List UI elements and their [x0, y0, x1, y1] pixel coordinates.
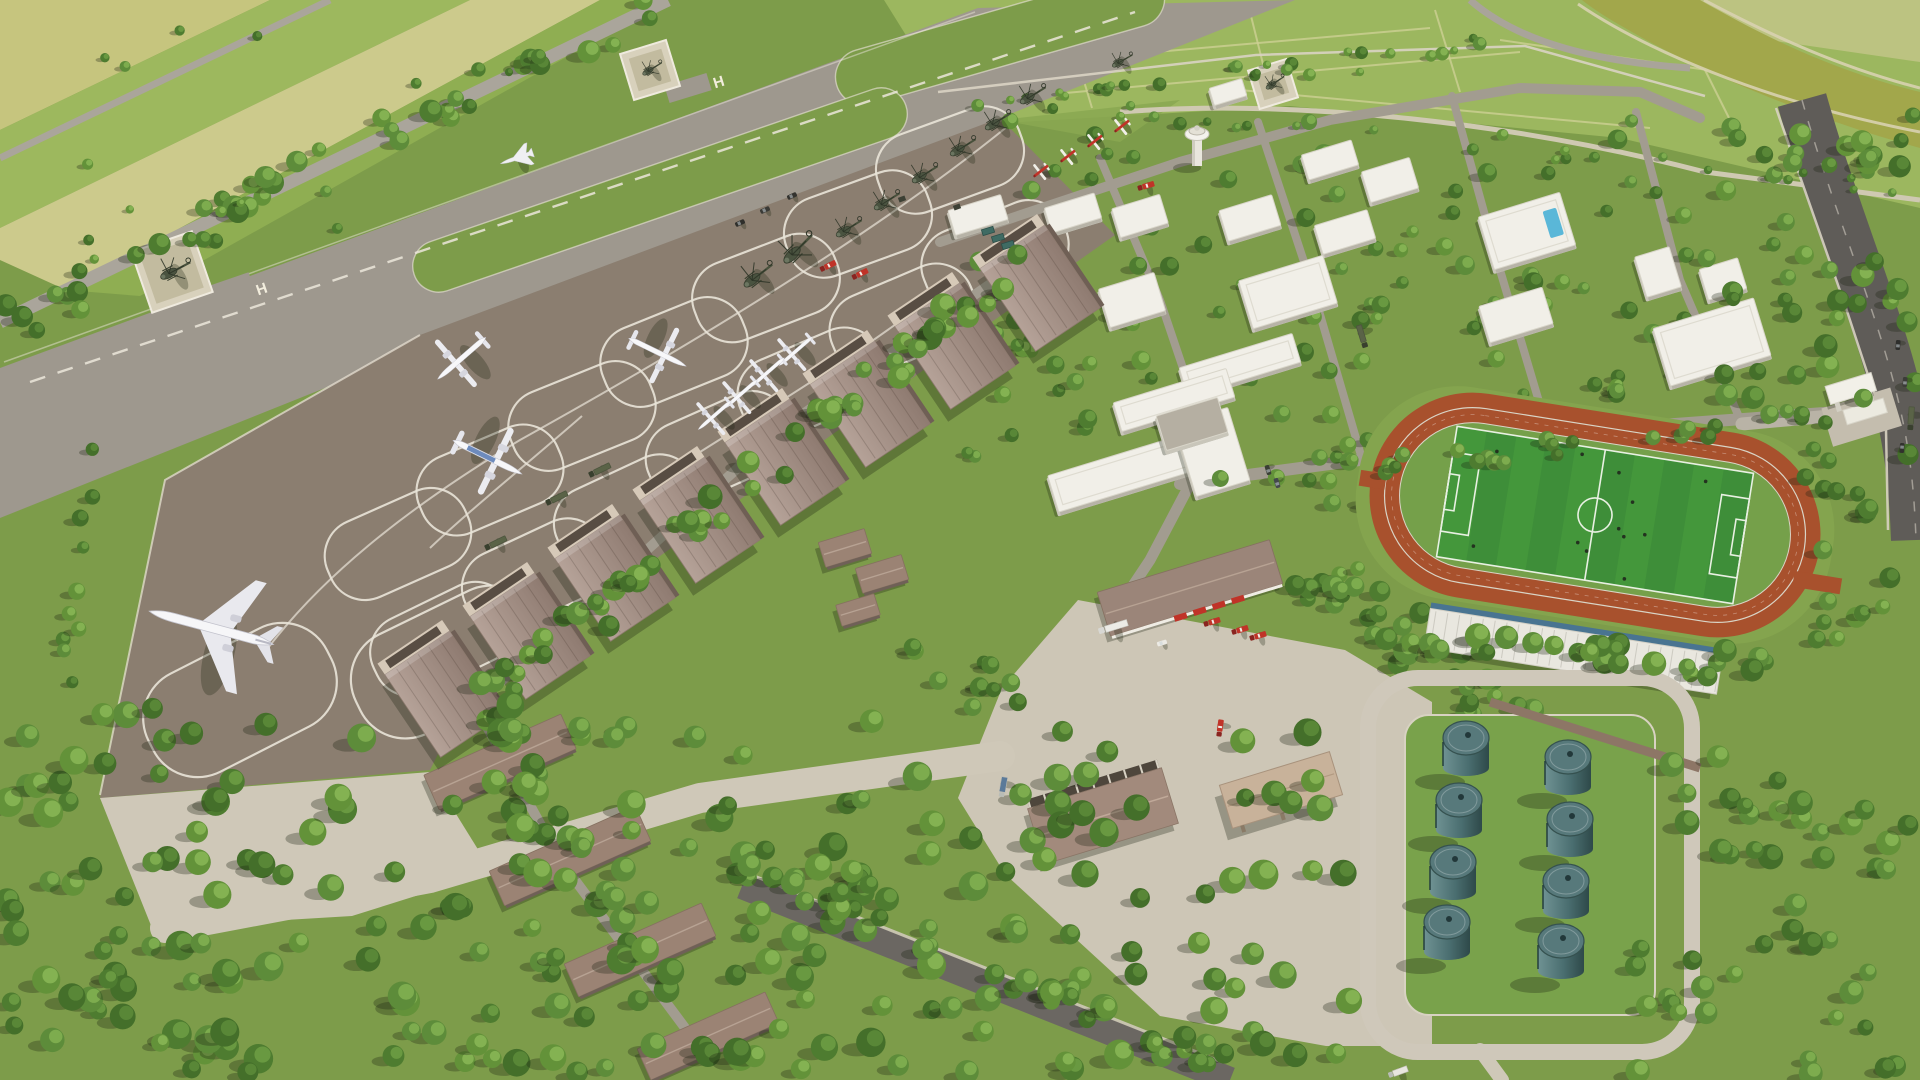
tree-highlight: [849, 862, 862, 875]
tree-highlight: [1834, 1011, 1843, 1020]
tree-highlight: [507, 694, 522, 709]
tree-highlight: [980, 1023, 992, 1035]
tree-highlight: [1756, 649, 1768, 661]
tree-highlight: [453, 92, 462, 101]
tree-highlight: [821, 1036, 836, 1051]
tree-highlight: [611, 38, 620, 47]
tree-highlight: [1775, 773, 1785, 783]
tree-highlight: [686, 840, 696, 850]
tree-highlight: [47, 873, 59, 885]
tree-highlight: [1685, 660, 1695, 670]
tree-highlight: [1554, 156, 1559, 161]
tree-highlight: [792, 424, 803, 435]
car-glass: [1903, 381, 1907, 384]
tree-highlight: [1848, 982, 1861, 995]
tree-highlight: [1891, 189, 1896, 194]
tree-highlight: [611, 728, 623, 740]
tree-highlight: [920, 939, 932, 951]
tree-highlight: [1904, 313, 1916, 325]
tree-highlight: [452, 895, 467, 910]
tree-highlight: [827, 400, 840, 413]
tree-highlight: [969, 874, 985, 890]
tree-highlight: [392, 863, 404, 875]
tree-highlight: [725, 798, 735, 808]
tree-highlight: [586, 42, 599, 55]
tree-highlight: [1787, 176, 1792, 181]
tree-highlight: [1474, 625, 1488, 639]
tree-highlight: [623, 718, 635, 730]
tree-highlight: [1749, 660, 1762, 673]
tree-highlight: [9, 994, 20, 1005]
tree-highlight: [1651, 653, 1664, 666]
tree-highlight: [1790, 921, 1802, 933]
tree-highlight: [574, 1063, 586, 1075]
tree-highlight: [603, 1060, 613, 1070]
tree-highlight: [1551, 637, 1562, 648]
tree-highlight: [1167, 258, 1177, 268]
tree-highlight: [1668, 754, 1682, 768]
tree-highlight: [1522, 389, 1529, 396]
tank-top: [1424, 905, 1470, 939]
scene-canvas: HH: [0, 0, 1920, 1080]
tree-highlight: [164, 848, 178, 862]
tree-highlight: [926, 843, 940, 857]
tree-highlight: [692, 728, 704, 740]
tree-highlight: [1897, 157, 1909, 169]
tree-highlight: [1440, 48, 1448, 56]
tree-highlight: [1010, 429, 1018, 437]
tree-highlight: [868, 711, 881, 724]
tree-highlight: [1119, 113, 1124, 118]
tree-highlight: [1729, 119, 1740, 130]
tree-highlight: [1835, 632, 1844, 641]
tree-highlight: [1083, 764, 1097, 778]
tree-highlight: [746, 855, 759, 868]
tree-highlight: [1827, 263, 1837, 273]
tree-highlight: [1400, 448, 1409, 457]
tree-highlight: [1304, 721, 1319, 736]
tree-highlight: [116, 928, 126, 938]
tree-highlight: [1494, 352, 1504, 362]
tree-highlight: [324, 187, 330, 193]
tree-highlight: [106, 971, 117, 982]
tree-highlight: [522, 774, 536, 788]
tree-highlight: [895, 1056, 907, 1068]
tree-highlight: [803, 991, 814, 1002]
tree-highlight: [1393, 462, 1400, 469]
tree-highlight: [648, 12, 657, 21]
tree-highlight: [1054, 766, 1069, 781]
tree-highlight: [19, 308, 31, 320]
tree-highlight: [1153, 112, 1159, 118]
tree-highlight: [1571, 436, 1578, 443]
tree-highlight: [1340, 862, 1355, 877]
tree-highlight: [1088, 357, 1096, 365]
tree-highlight: [1079, 802, 1093, 816]
tree-highlight: [1822, 616, 1831, 625]
tree-highlight: [782, 467, 792, 477]
tree-highlight: [1676, 1005, 1686, 1015]
tree-highlight: [44, 801, 60, 817]
tree-highlight: [1722, 366, 1733, 377]
tree-highlight: [1654, 187, 1661, 194]
tree-highlight: [1359, 354, 1369, 364]
tree-highlight: [877, 910, 887, 920]
tree-highlight: [87, 859, 100, 872]
tree-highlight: [837, 884, 848, 895]
tree-highlight: [1563, 146, 1569, 152]
tree-highlight: [1501, 130, 1508, 137]
tree-highlight: [1133, 965, 1146, 978]
tree-highlight: [1755, 364, 1764, 373]
tree-highlight: [1346, 438, 1355, 447]
tree-highlight: [555, 807, 567, 819]
tree-highlight: [1550, 439, 1558, 447]
tree-highlight: [90, 490, 99, 499]
tree-highlight: [517, 816, 533, 832]
tree-highlight: [122, 889, 132, 899]
tree-highlight: [1239, 730, 1253, 744]
tree-highlight: [13, 922, 27, 936]
tree-highlight: [1077, 968, 1089, 980]
tree-highlight: [1794, 367, 1805, 378]
tree-highlight: [477, 673, 490, 686]
tree-highlight: [513, 1051, 528, 1066]
tree-highlight: [1797, 792, 1811, 806]
tree-highlight: [756, 903, 769, 916]
tree-highlight: [593, 595, 602, 604]
tree-highlight: [1259, 1033, 1273, 1047]
tree-highlight: [1762, 147, 1772, 157]
tree-highlight: [1827, 158, 1836, 167]
tree-highlight: [512, 683, 522, 693]
tree-highlight: [1630, 115, 1637, 122]
tree-highlight: [1399, 244, 1407, 252]
tree-highlight: [1015, 695, 1025, 705]
tree-highlight: [948, 998, 960, 1010]
tree-highlight: [189, 1061, 199, 1071]
tree-highlight: [124, 62, 130, 68]
tree-highlight: [1015, 246, 1026, 257]
tree-highlight: [541, 647, 551, 657]
tree-highlight: [66, 793, 77, 804]
tree-highlight: [490, 1051, 500, 1061]
tree-highlight: [1723, 182, 1734, 193]
tree-highlight: [1196, 934, 1208, 946]
tree-highlight: [776, 1021, 787, 1032]
tree-highlight: [620, 859, 634, 873]
tree-highlight: [1375, 313, 1382, 320]
tree-highlight: [365, 949, 379, 963]
tree-highlight: [1356, 563, 1364, 571]
tree-highlight: [1546, 167, 1554, 175]
tree-highlight: [966, 448, 973, 455]
tree-highlight: [549, 965, 560, 976]
tree-highlight: [530, 920, 540, 930]
tree-highlight: [296, 934, 307, 945]
tree-highlight: [629, 823, 639, 833]
tree-highlight: [1195, 1054, 1206, 1065]
tree-highlight: [1340, 263, 1347, 270]
tree-highlight: [1411, 226, 1418, 233]
tree-highlight: [751, 1047, 763, 1059]
tree-highlight: [1478, 38, 1486, 46]
tree-highlight: [336, 224, 342, 230]
tree-highlight: [87, 236, 93, 242]
tree-highlight: [515, 667, 524, 676]
tree-highlight: [1067, 926, 1078, 937]
tree-highlight: [1310, 862, 1321, 873]
tree-highlight: [450, 796, 461, 807]
tree-highlight: [508, 69, 512, 73]
tree-highlight: [1451, 207, 1459, 215]
tree-highlight: [213, 235, 221, 243]
tree-highlight: [1317, 451, 1326, 460]
tree-highlight: [1905, 817, 1916, 828]
tree-highlight: [1129, 102, 1134, 107]
tree-highlight: [1221, 1045, 1232, 1056]
tree-highlight: [391, 1047, 403, 1059]
tree-highlight: [1806, 1052, 1816, 1062]
tree-highlight: [309, 821, 324, 836]
tree-highlight: [549, 1046, 564, 1061]
tree-highlight: [1308, 69, 1315, 76]
tree-highlight: [1824, 357, 1837, 370]
tree-highlight: [1137, 890, 1148, 901]
tree-highlight: [1017, 785, 1029, 797]
tower-dome: [1194, 125, 1200, 131]
tree-highlight: [1178, 118, 1185, 125]
tree-highlight: [1295, 122, 1300, 127]
tree-highlight: [1684, 785, 1694, 795]
tree-highlight: [1049, 983, 1062, 996]
tree-highlight: [1485, 165, 1496, 176]
tree-highlight: [763, 842, 774, 853]
tree-highlight: [1279, 407, 1289, 417]
tree-highlight: [1109, 82, 1114, 87]
tree-highlight: [1351, 578, 1362, 589]
tree-highlight: [1235, 124, 1240, 129]
tree-highlight: [194, 823, 206, 835]
tree-highlight: [1327, 364, 1336, 373]
tree-highlight: [1808, 934, 1821, 947]
tank-hatch: [1465, 732, 1471, 738]
tree-highlight: [491, 771, 505, 785]
tree-highlight: [1814, 632, 1824, 642]
tree-highlight: [1484, 645, 1493, 654]
tree-highlight: [1090, 173, 1098, 181]
tree-highlight: [1783, 215, 1793, 225]
tree-highlight: [1611, 642, 1622, 653]
tree-highlight: [1235, 61, 1242, 68]
tree-highlight: [641, 938, 656, 953]
tree-highlight: [765, 950, 780, 965]
tree-highlight: [1389, 49, 1395, 55]
tree-highlight: [1835, 291, 1847, 303]
tree-highlight: [965, 307, 977, 319]
tree-highlight: [1000, 388, 1009, 397]
tree-highlight: [1872, 254, 1882, 264]
tree-highlight: [1911, 109, 1920, 118]
tree-highlight: [9, 901, 22, 914]
tree-highlight: [1408, 635, 1419, 646]
tree-highlight: [1054, 793, 1069, 808]
tree-highlight: [562, 870, 575, 883]
tree-highlight: [1292, 1045, 1306, 1059]
tree-highlight: [474, 1035, 486, 1047]
tree-highlight: [358, 726, 374, 742]
tree-highlight: [188, 724, 201, 737]
tree-highlight: [1009, 97, 1014, 102]
tree-highlight: [1302, 344, 1313, 355]
tree-highlight: [1627, 303, 1637, 313]
tree-highlight: [57, 773, 70, 786]
tree-highlight: [1752, 843, 1762, 853]
tree-highlight: [1053, 357, 1063, 367]
tank-hatch: [1569, 813, 1575, 819]
tree-highlight: [1250, 944, 1262, 956]
tree-highlight: [1158, 79, 1166, 87]
tree-highlight: [157, 766, 167, 776]
tree-highlight: [1232, 979, 1243, 990]
tree-highlight: [1201, 237, 1211, 247]
tree-highlight: [74, 283, 86, 295]
tree-highlight: [929, 813, 943, 827]
tree-highlight: [829, 835, 845, 851]
tree-highlight: [1713, 420, 1722, 429]
tree-highlight: [1493, 690, 1502, 699]
tree-highlight: [790, 874, 803, 887]
tree-highlight: [70, 748, 86, 764]
tree-highlight: [1310, 771, 1323, 784]
tank-top: [1547, 802, 1593, 836]
tree-highlight: [1383, 629, 1395, 641]
truck-cab: [1907, 425, 1913, 430]
tree-highlight: [1401, 277, 1408, 284]
tree-highlight: [222, 961, 238, 977]
tree-highlight: [1358, 313, 1368, 323]
car-glass: [1896, 344, 1900, 347]
tree-highlight: [119, 1006, 133, 1020]
tree-highlight: [1326, 474, 1336, 484]
tree-highlight: [12, 1018, 22, 1028]
tree-highlight: [1899, 134, 1907, 142]
tree-highlight: [1855, 487, 1864, 496]
tree-highlight: [3, 296, 15, 308]
tree-highlight: [1503, 628, 1516, 641]
tree-highlight: [606, 617, 618, 629]
tree-highlight: [240, 200, 244, 204]
tank-hatch: [1458, 794, 1464, 800]
tree-highlight: [1651, 431, 1659, 439]
tree-highlight: [373, 917, 384, 928]
tree-highlight: [1684, 812, 1698, 826]
tree-highlight: [740, 747, 751, 758]
tree-highlight: [1471, 144, 1478, 151]
tree-highlight: [1008, 675, 1018, 685]
tree-highlight: [1823, 417, 1831, 425]
tree-highlight: [1616, 655, 1627, 666]
tree-highlight: [1351, 455, 1358, 462]
tree-highlight: [529, 755, 543, 769]
tree-highlight: [1767, 846, 1781, 860]
tree-highlight: [428, 102, 441, 115]
tree-highlight: [1429, 51, 1435, 57]
tree-highlight: [81, 542, 88, 549]
tree-highlight: [815, 856, 830, 871]
tank-shadow: [1510, 977, 1560, 993]
tank-top: [1436, 783, 1482, 817]
tree-highlight: [1123, 80, 1129, 86]
tree-highlight: [415, 79, 421, 85]
tree-highlight: [77, 623, 85, 631]
tree-highlight: [476, 63, 484, 71]
tree-highlight: [1307, 115, 1316, 124]
tree-highlight: [1685, 422, 1694, 431]
tree-highlight: [173, 1022, 189, 1038]
tree-highlight: [862, 363, 871, 372]
tree-highlight: [1103, 999, 1115, 1011]
tree-highlight: [24, 726, 37, 739]
tree-highlight: [976, 100, 983, 107]
tree-highlight: [1203, 1035, 1215, 1047]
tree-highlight: [1051, 104, 1057, 110]
tree-highlight: [1475, 454, 1484, 463]
tree-highlight: [770, 868, 782, 880]
tree-highlight: [1661, 153, 1666, 158]
tree-highlight: [1735, 131, 1745, 141]
tree-highlight: [398, 984, 414, 1000]
tree-highlight: [1462, 257, 1473, 268]
tree-highlight: [1705, 668, 1716, 679]
tree-highlight: [1555, 450, 1562, 457]
tree-highlight: [576, 719, 588, 731]
tree-highlight: [467, 100, 475, 108]
tree-highlight: [1377, 583, 1389, 595]
tree-highlight: [1644, 997, 1656, 1009]
tree-highlight: [201, 233, 210, 242]
tree-highlight: [102, 754, 114, 766]
tree-highlight: [796, 965, 812, 981]
tank-top: [1538, 924, 1584, 958]
tree-highlight: [1895, 280, 1907, 292]
tree-highlight: [1303, 210, 1313, 220]
tree-highlight: [792, 925, 808, 941]
tree-highlight: [893, 354, 903, 364]
tree-highlight: [202, 201, 212, 211]
tree-highlight: [1531, 274, 1542, 285]
tree-highlight: [1827, 932, 1837, 942]
tree-highlight: [53, 287, 62, 296]
tree-highlight: [1333, 1045, 1344, 1056]
tree-highlight: [1783, 294, 1791, 302]
tank-hatch: [1452, 856, 1458, 862]
tree-highlight: [1593, 378, 1601, 386]
tree-highlight: [991, 683, 999, 691]
tank-hatch: [1565, 875, 1571, 881]
tree-highlight: [1587, 644, 1597, 654]
tree-highlight: [811, 945, 824, 958]
tree-highlight: [1859, 132, 1871, 144]
tree-highlight: [219, 207, 225, 213]
tree-highlight: [852, 401, 861, 410]
tree-highlight: [1106, 149, 1113, 156]
tree-highlight: [178, 26, 184, 32]
tree-highlight: [74, 584, 83, 593]
tree-highlight: [104, 54, 109, 59]
tree-highlight: [579, 839, 591, 851]
tree-highlight: [1115, 1042, 1131, 1058]
